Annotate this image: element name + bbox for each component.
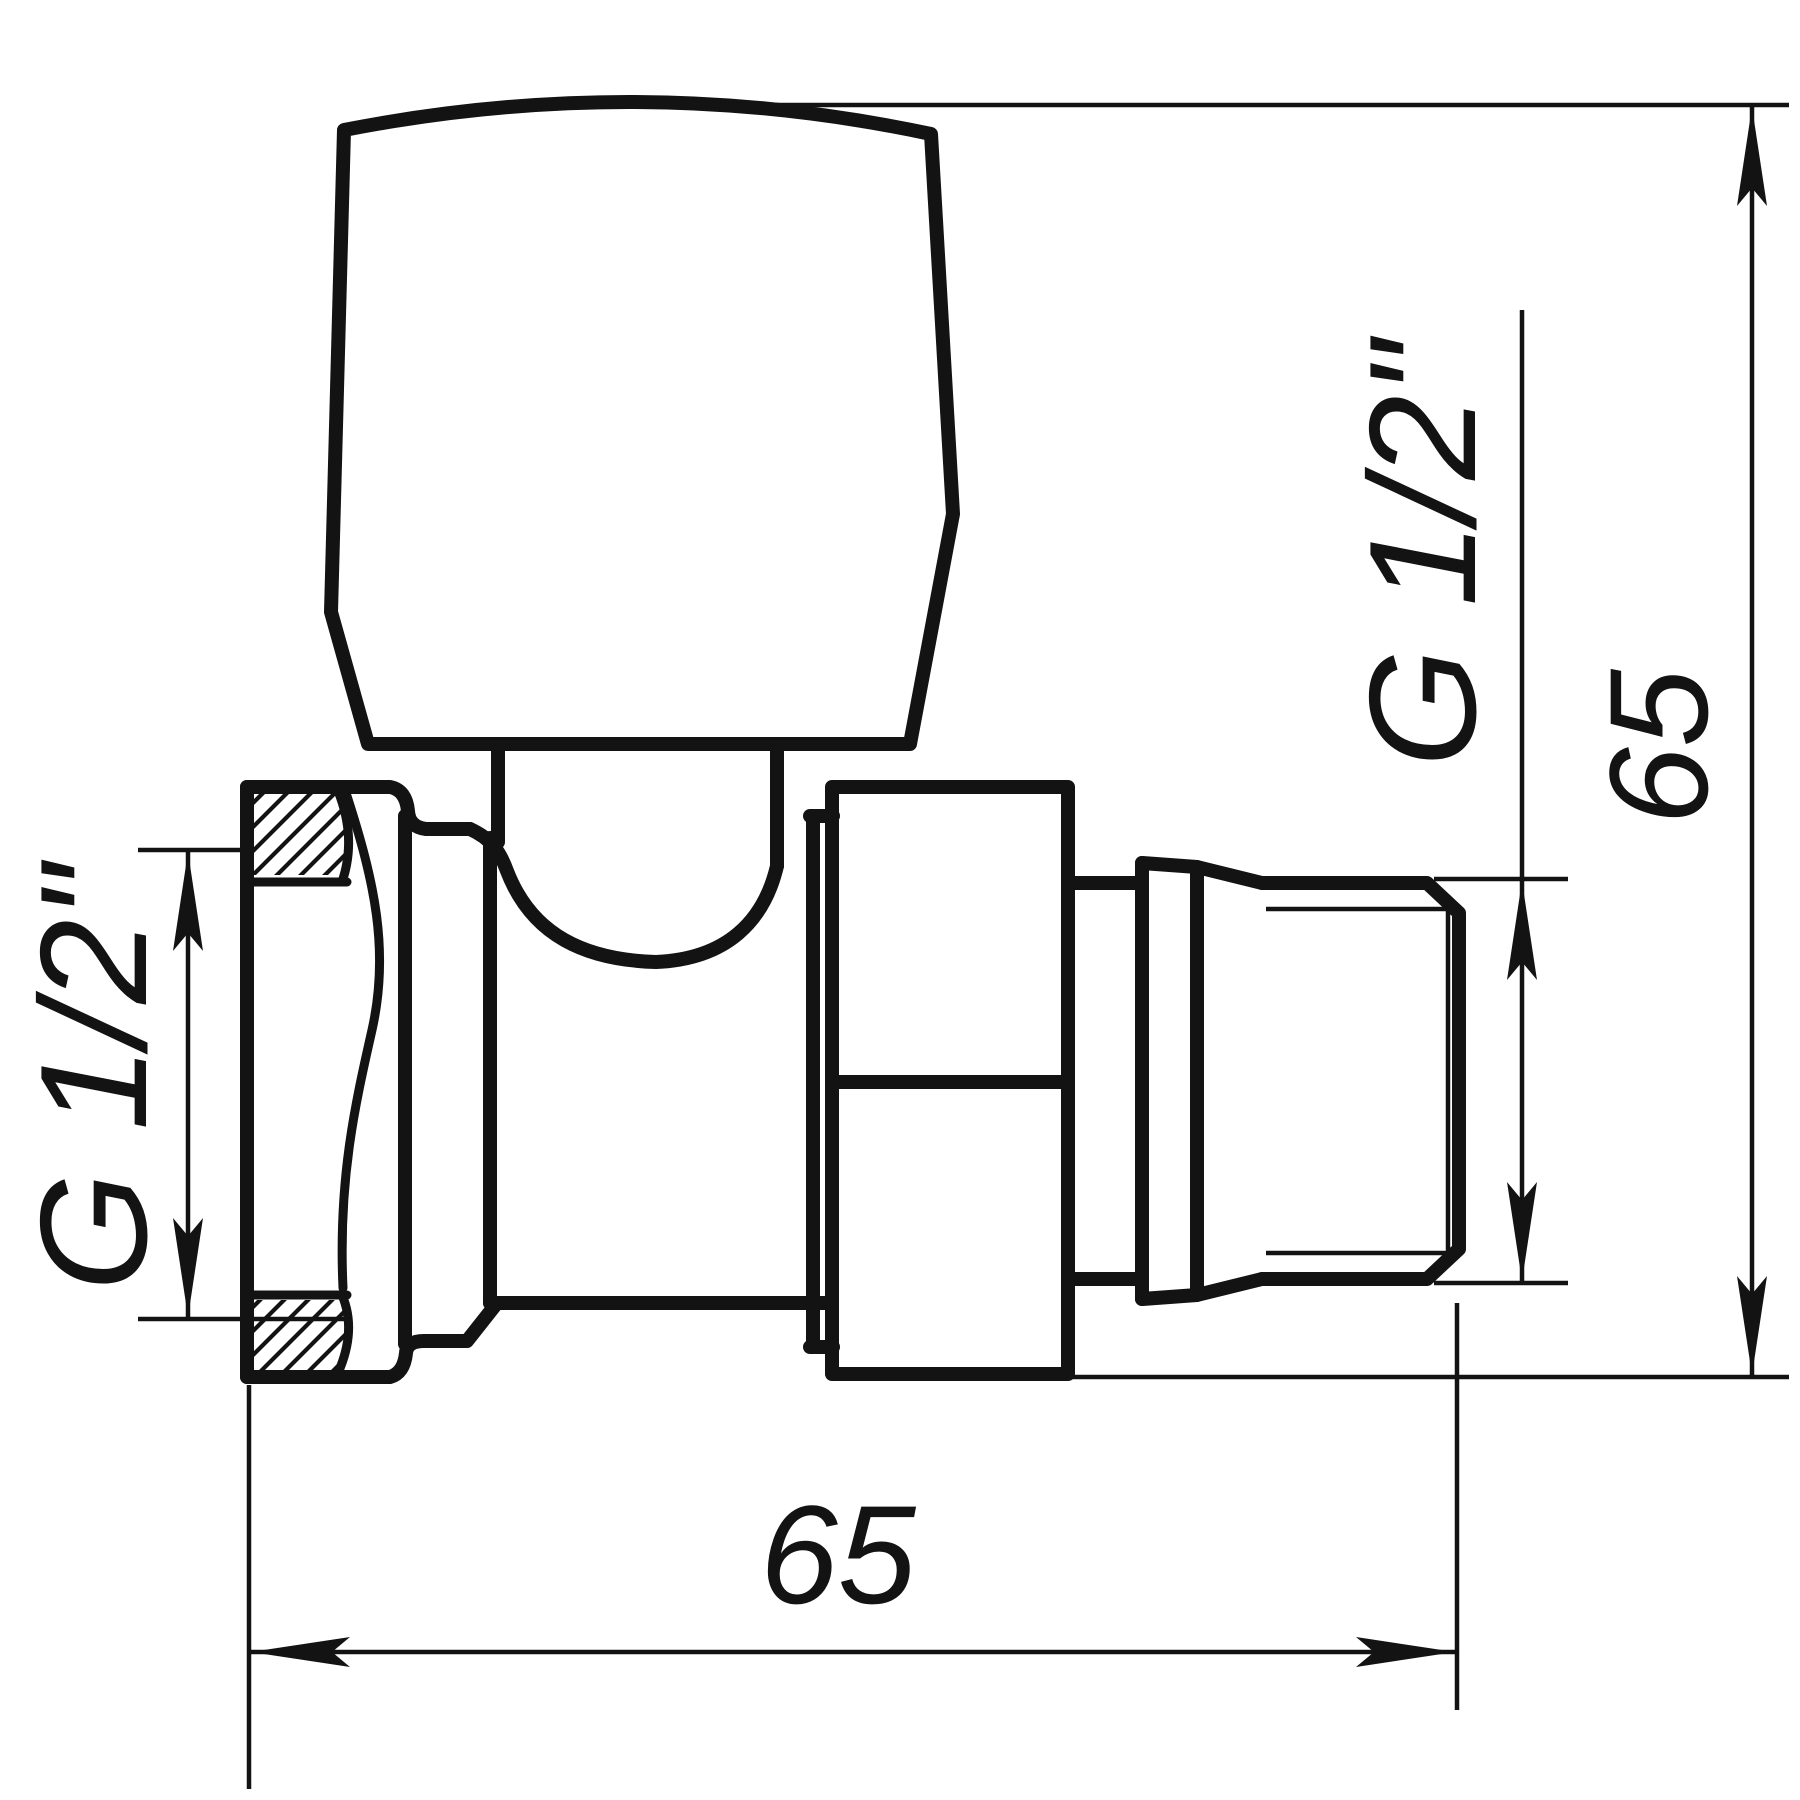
threaded-tailpiece (1068, 863, 1459, 1299)
head-outline (331, 102, 953, 744)
thread-section-hatch-top (254, 794, 346, 875)
left-thread-label: G 1/2" (9, 859, 179, 1291)
thread-outline (1262, 883, 1459, 1279)
valve-technical-drawing-page: G 1/2" G 1/2" 65 65 (0, 0, 1800, 1800)
right-swivel-nut (832, 787, 1068, 1374)
right-thread-label: G 1/2" (1338, 335, 1508, 767)
thread-section-hatch-bottom (254, 1300, 346, 1370)
overall-height-label: 65 (1580, 668, 1737, 825)
overall-length-label: 65 (760, 1476, 917, 1633)
body-dome-arc (470, 829, 777, 962)
valve-neck-and-dome (470, 751, 833, 1347)
radiator-valve-drawing: G 1/2" G 1/2" 65 65 (0, 0, 1800, 1800)
dim-left-thread: G 1/2" (9, 850, 348, 1319)
left-union-nut (247, 787, 497, 1377)
thermostatic-head (331, 102, 953, 744)
